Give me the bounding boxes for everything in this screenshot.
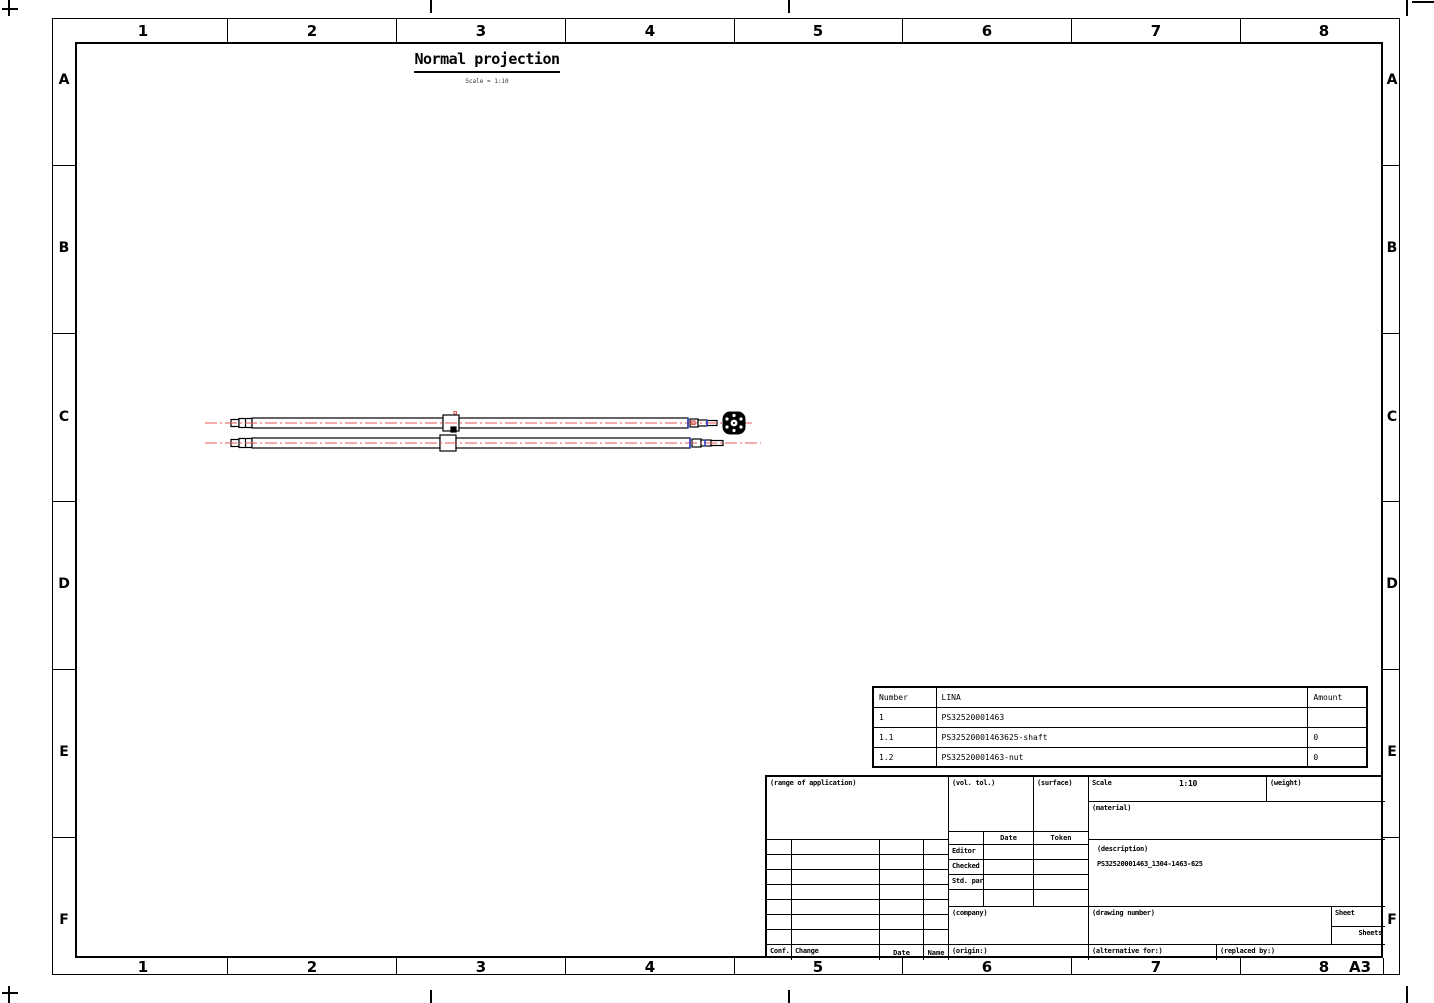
revision-cell (767, 855, 792, 870)
flange-end-view[interactable] (723, 412, 745, 434)
revision-cell (924, 915, 949, 930)
drawing-canvas (195, 396, 765, 456)
material-box: (material) (1089, 802, 1385, 840)
part-name: PS32520001463625-shaft (937, 728, 1309, 748)
zone-col-top-6: 6 (972, 22, 1002, 40)
part-amount: 0 (1308, 728, 1366, 748)
zone-col-top-2: 2 (297, 22, 327, 40)
approval-blank-cell (949, 890, 984, 907)
zone-col-bottom-5: 5 (803, 958, 833, 976)
revision-cell (924, 900, 949, 915)
revision-cell (792, 855, 880, 870)
company-box: (company) (949, 907, 1089, 945)
revision-cell (880, 840, 924, 855)
zone-row-left-d: D (53, 576, 75, 592)
range-of-application-box: (range of application) (767, 777, 949, 840)
zone-tick (902, 958, 903, 975)
replaced-by-box: (replaced by:) (1217, 945, 1385, 960)
zone-tick (396, 958, 397, 975)
part-amount: 0 (1308, 748, 1366, 767)
crop-mark-top-left (2, 8, 18, 10)
approval-blank-cell (984, 890, 1034, 907)
conf-label: Conf. (770, 947, 790, 955)
crop-mark-bottom-left-v (8, 986, 10, 1003)
zone-tick (52, 501, 75, 502)
general-tolerance-label: (vol. tol.) (952, 779, 995, 787)
description-label: (description) (1097, 845, 1148, 853)
general-tolerance-box: (vol. tol.) (949, 777, 1034, 832)
crop-mark-bottom-right-v (1406, 986, 1408, 1003)
revision-cell (767, 885, 792, 900)
parts-header-amount: Amount (1308, 688, 1366, 708)
sheet-label: Sheet (1335, 909, 1355, 917)
zone-tick (1383, 333, 1400, 334)
zone-tick (1383, 837, 1400, 838)
surface-box: (surface) (1034, 777, 1089, 832)
surface-label: (surface) (1037, 779, 1072, 787)
zone-row-right-b: B (1381, 240, 1403, 256)
description-box: (description) PS32520001463_1304-1463-62… (1089, 840, 1385, 907)
zone-tick (52, 165, 75, 166)
zone-row-right-e: E (1381, 744, 1403, 760)
zone-tick (734, 958, 735, 975)
revision-cell (880, 885, 924, 900)
zone-col-bottom-2: 2 (297, 958, 327, 976)
crop-mark-top-right-v (1406, 0, 1408, 16)
revision-cell (767, 915, 792, 930)
alternative-for-label: (alternative for:) (1092, 947, 1162, 955)
zone-col-bottom-3: 3 (466, 958, 496, 976)
approval-date-header: Date (984, 832, 1034, 845)
name-header: Name (924, 945, 949, 960)
zone-tick (1383, 165, 1400, 166)
revision-cell (924, 885, 949, 900)
zone-col-top-3: 3 (466, 22, 496, 40)
part-number: 1.2 (874, 748, 937, 767)
checked-row-label: Checked (949, 860, 984, 875)
description-value: PS32520001463_1304-1463-625 (1097, 860, 1203, 868)
crop-mark-bottom-center-1 (430, 990, 432, 1003)
revision-cell (880, 930, 924, 945)
crop-mark-top-left-v (8, 0, 10, 16)
zone-col-top-8: 8 (1309, 22, 1339, 40)
change-label: Change (795, 947, 819, 955)
origin-box: (origin:) (949, 945, 1089, 960)
zone-row-left-a: A (53, 72, 75, 88)
approval-blank-cell (1034, 890, 1089, 907)
sheets-label: Sheets (1359, 929, 1383, 937)
material-label: (material) (1092, 804, 1131, 812)
zone-row-left-f: F (53, 912, 75, 928)
sheets-box: Sheets (1332, 927, 1385, 945)
view-title: Normal projection (414, 50, 560, 73)
part-number: 1 (874, 708, 937, 728)
zone-row-right-c: C (1381, 409, 1403, 425)
std-part-name-cell (1034, 875, 1089, 890)
drawing-sheet: { "sheet": { "format": "A3", "zone_colum… (0, 0, 1434, 1003)
zone-tick (1383, 501, 1400, 502)
scale-label: Scale (1092, 779, 1112, 787)
revision-cell (767, 930, 792, 945)
zone-col-top-4: 4 (635, 22, 665, 40)
parts-table-header-row: Number LINA Amount (874, 688, 1366, 708)
revision-cell (767, 870, 792, 885)
zone-tick (565, 18, 566, 42)
zone-col-bottom-1: 1 (128, 958, 158, 976)
revision-cell (924, 855, 949, 870)
crop-mark-bottom-left (2, 992, 18, 994)
revision-cell (924, 930, 949, 945)
revision-cell (880, 855, 924, 870)
revision-cell (792, 915, 880, 930)
alternative-for-box: (alternative for:) (1089, 945, 1217, 960)
sheet-box: Sheet (1332, 907, 1385, 927)
revision-cell (767, 840, 792, 855)
zone-tick (396, 18, 397, 42)
zone-divider (1383, 958, 1384, 975)
crop-mark-top-right (1412, 1, 1434, 3)
part-amount (1308, 708, 1366, 728)
zone-tick (734, 18, 735, 42)
zone-tick (227, 18, 228, 42)
zone-tick (1071, 18, 1072, 42)
crop-mark-top-center-2 (788, 0, 790, 13)
zone-col-top-7: 7 (1141, 22, 1171, 40)
scale-box: Scale 1:10 (1089, 777, 1267, 802)
part-name: PS32520001463 (937, 708, 1309, 728)
company-label: (company) (952, 909, 987, 917)
drawing-number-box: (drawing number) (1089, 907, 1332, 945)
parts-table-row[interactable]: 1 PS32520001463 (874, 708, 1366, 728)
parts-header-name: LINA (937, 688, 1309, 708)
zone-tick (227, 958, 228, 975)
zone-row-right-a: A (1381, 72, 1403, 88)
zone-tick (902, 18, 903, 42)
checked-label: Checked (952, 862, 979, 870)
checked-name-cell (1034, 860, 1089, 875)
zone-col-top-5: 5 (803, 22, 833, 40)
part-number: 1.1 (874, 728, 937, 748)
conf-header: Conf. (767, 945, 792, 960)
zone-tick (52, 837, 75, 838)
revision-cell (924, 870, 949, 885)
crop-mark-bottom-center-2 (788, 990, 790, 1003)
drawing-number-label: (drawing number) (1092, 909, 1155, 917)
zone-row-left-b: B (53, 240, 75, 256)
weight-label: (weight) (1270, 779, 1301, 787)
checked-date-cell (984, 860, 1034, 875)
editor-row-label: Editor (949, 845, 984, 860)
revision-cell (880, 900, 924, 915)
parts-table-row[interactable]: 1.1 PS32520001463625-shaft 0 (874, 728, 1366, 748)
revision-cell (880, 915, 924, 930)
title-block: (range of application) Conf. Change Date… (765, 775, 1383, 958)
revision-cell (792, 885, 880, 900)
zone-col-bottom-6: 6 (972, 958, 1002, 976)
revision-cell (767, 900, 792, 915)
zone-col-bottom-4: 4 (635, 958, 665, 976)
zone-tick (52, 333, 75, 334)
zone-col-top-1: 1 (128, 22, 158, 40)
zone-tick (1071, 958, 1072, 975)
part-name: PS32520001463-nut (937, 748, 1309, 767)
date-header: Date (880, 945, 924, 960)
revision-cell (792, 930, 880, 945)
revision-cell (792, 900, 880, 915)
zone-col-bottom-8: 8 (1309, 958, 1339, 976)
std-part-label: Std. part (952, 877, 984, 885)
range-of-application-label: (range of application) (770, 779, 856, 787)
zone-tick (1240, 958, 1241, 975)
change-header: Change (792, 945, 880, 960)
zone-tick (1240, 18, 1241, 42)
zone-row-right-d: D (1381, 576, 1403, 592)
replaced-by-label: (replaced by:) (1220, 947, 1275, 955)
zone-tick (52, 669, 75, 670)
std-part-date-cell (984, 875, 1034, 890)
revision-cell (792, 870, 880, 885)
crop-mark-top-center-1 (430, 0, 432, 13)
revision-cell (792, 840, 880, 855)
editor-name-cell (1034, 845, 1089, 860)
scale-value: 1:10 (1179, 779, 1197, 788)
parts-list-table: Number LINA Amount 1 PS32520001463 1.1 P… (872, 686, 1368, 768)
editor-label: Editor (952, 847, 976, 855)
parts-table-row[interactable]: 1.2 PS32520001463-nut 0 (874, 748, 1366, 767)
std-part-row-label: Std. part (949, 875, 984, 890)
approval-token-header: Token (1034, 832, 1089, 845)
revision-cell (880, 870, 924, 885)
sheet-format-label: A3 (1338, 958, 1382, 976)
approval-header-cell (949, 832, 984, 845)
zone-tick (565, 958, 566, 975)
weight-box: (weight) (1267, 777, 1385, 802)
editor-date-cell (984, 845, 1034, 860)
origin-label: (origin:) (952, 947, 987, 955)
zone-tick (1383, 669, 1400, 670)
zone-col-bottom-7: 7 (1141, 958, 1171, 976)
parts-header-number: Number (874, 688, 937, 708)
zone-row-left-c: C (53, 409, 75, 425)
view-scale-subtitle: Scale = 1:10 (414, 78, 560, 85)
revision-cell (924, 840, 949, 855)
zone-row-left-e: E (53, 744, 75, 760)
